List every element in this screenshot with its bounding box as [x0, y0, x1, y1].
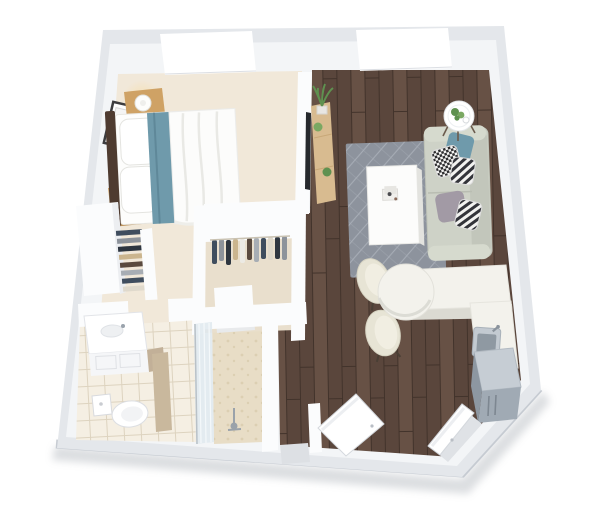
- living-window: [356, 28, 452, 71]
- wall-tv: [305, 112, 311, 190]
- bathroom-wall-top2: [168, 298, 197, 322]
- console-plant-small-1: [314, 123, 323, 132]
- floorplan-render: [0, 0, 600, 510]
- console-plant-small-2: [323, 168, 332, 177]
- sofa: [424, 125, 493, 261]
- refrigerator: [471, 348, 521, 423]
- hall-door-threshold: [280, 443, 310, 464]
- bedroom-window: [160, 31, 256, 75]
- coffee-table: [367, 165, 425, 248]
- floorplan-canvas: [0, 0, 600, 510]
- vanity-faucet: [121, 324, 125, 328]
- shower-wall-right: [262, 305, 278, 452]
- round-breakfast-counter: [378, 264, 434, 320]
- shower-floor: [212, 319, 264, 444]
- pillow-stripe: [450, 156, 476, 185]
